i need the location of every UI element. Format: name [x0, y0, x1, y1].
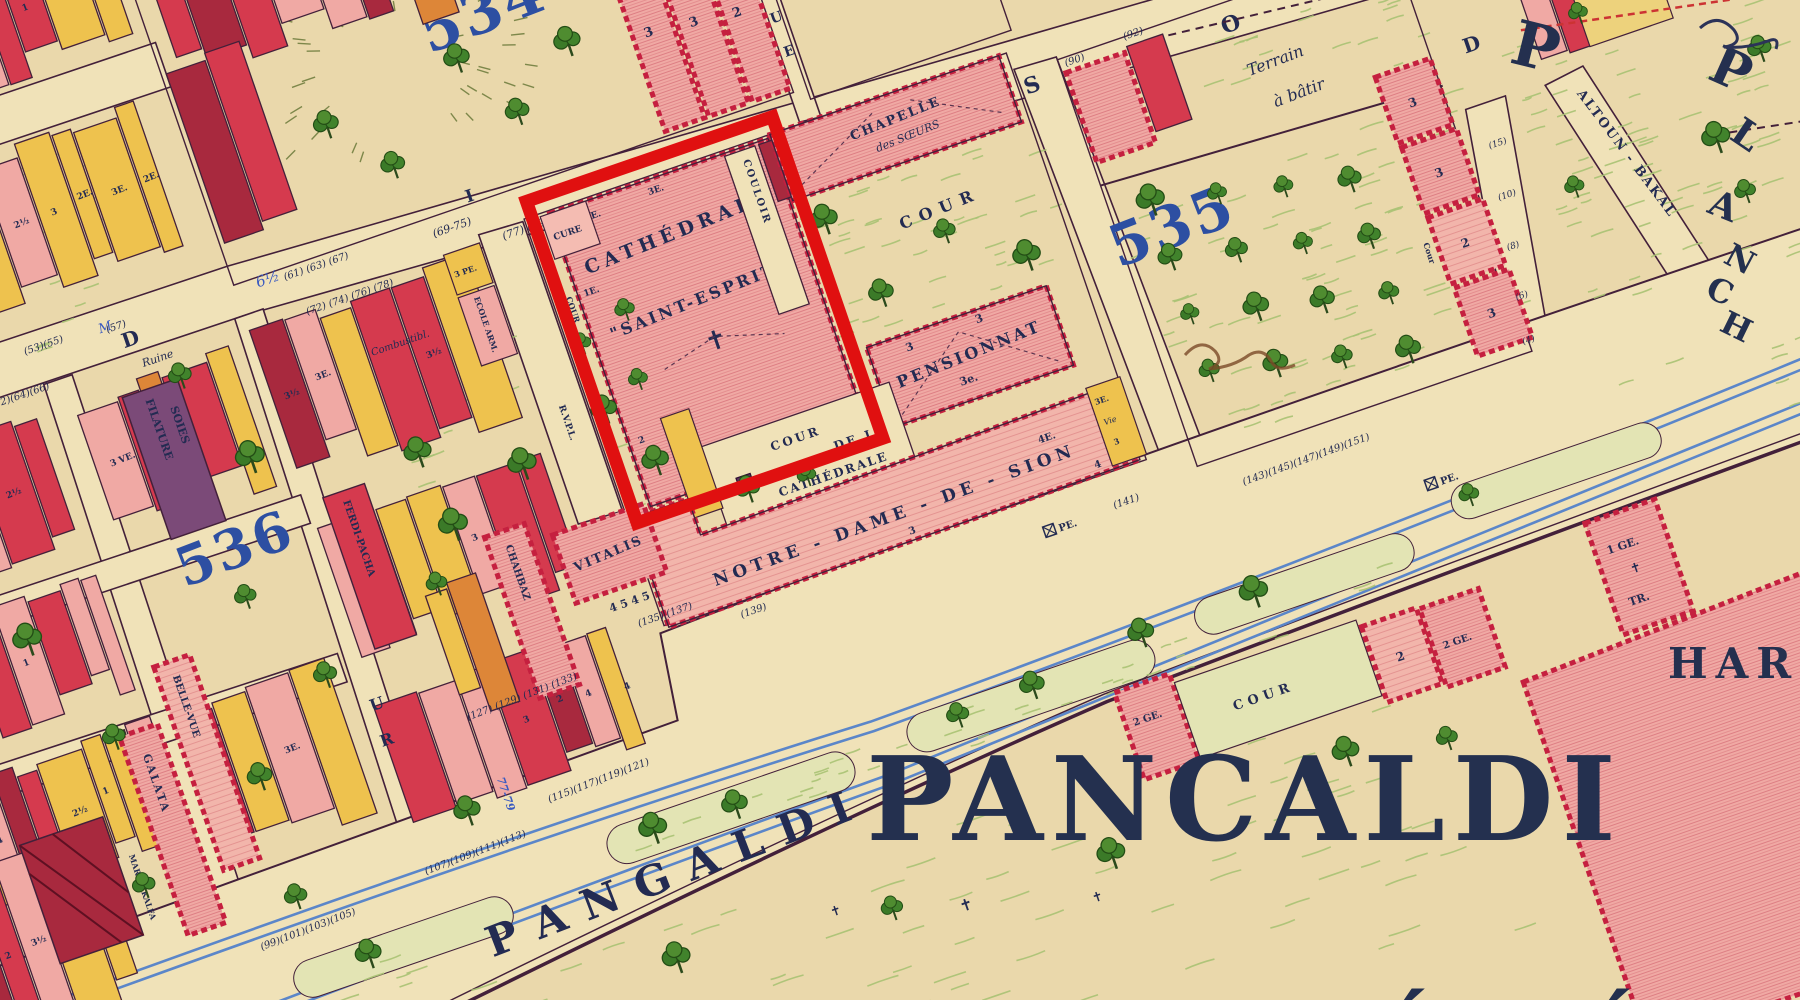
har-partial-label: HAR — [1668, 639, 1799, 688]
district-subtitle-partial: DOLAP DÉRÉ — [693, 988, 1677, 1000]
map-canvas: 42E.4E.51122½32E.3E.2E.2½53 VE.111242½12… — [0, 0, 1800, 1000]
historic-insurance-map: 42E.4E.51122½32E.3E.2E.2½53 VE.111242½12… — [0, 0, 1800, 1000]
district-title: PANCALDI — [866, 732, 1624, 868]
